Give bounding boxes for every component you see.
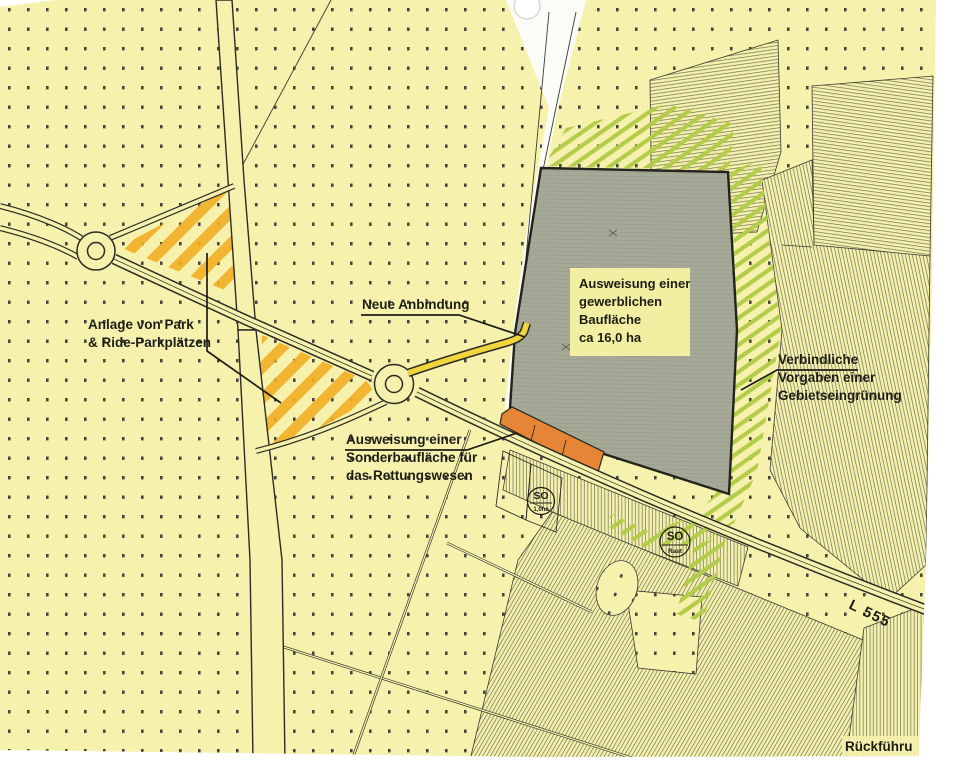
industrial-label-line2: gewerblichen [579,294,662,309]
bottom-right-label: Rückführu [845,739,913,754]
park-ride-label-line1: Anlage von Park [88,317,194,332]
map-canvas: SO 1,0ha SO Rast Anlage von Park & Ride-… [0,0,959,773]
park-ride-label-line2: & Ride-Parkplätzen [88,335,211,350]
greening-label-line3: Gebietseingrünung [778,388,902,403]
industrial-label-line4: ca 16,0 ha [579,330,642,345]
so-zone-sublabel: 1,0ha [533,507,549,513]
roundabout-inner [88,243,105,260]
industrial-label-line1: Ausweisung einer [579,276,690,291]
greening-label-line2: Vorgaben einer [778,370,876,385]
so-zone-label: SO [667,531,684,543]
rescue-label-line2: Sonderbaufläche für [346,450,478,465]
roundabout-inner [386,376,403,393]
planning-map: SO 1,0ha SO Rast Anlage von Park & Ride-… [0,0,959,773]
rescue-label-line1: Ausweisung einer [346,432,462,447]
industrial-label-line3: Baufläche [579,312,641,327]
so-zone-sublabel: Rast [668,548,683,555]
roundabout-1 [77,232,115,270]
greening-label-line1: Verbindliche [778,352,859,367]
rescue-label-line3: das Rettungswesen [346,468,473,483]
so-zone-label: SO [533,490,548,502]
new-connection-label: Neue Anbindung [362,297,470,312]
field-parcel [812,76,933,258]
